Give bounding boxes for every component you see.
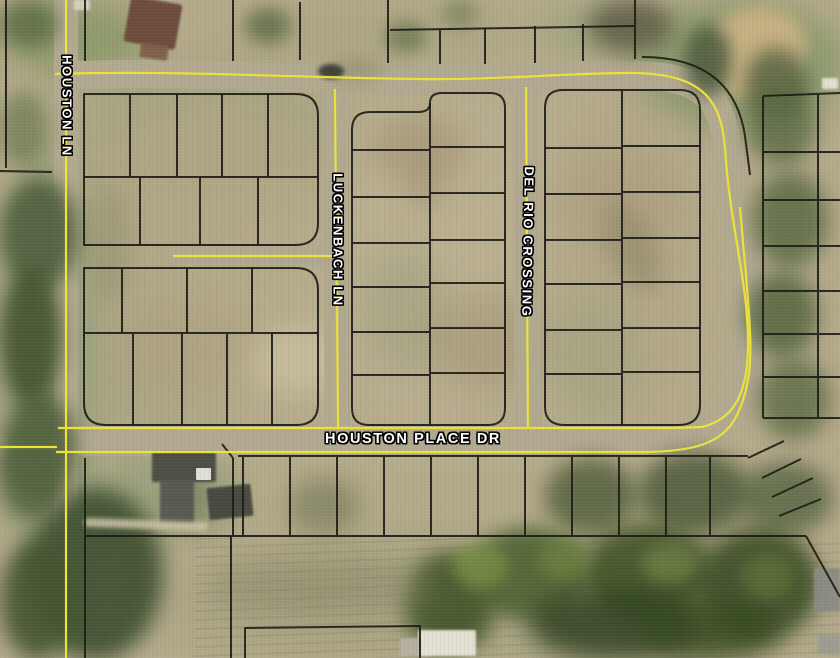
- street-labels-layer: HOUSTON LNLUCKENBACH LNDEL RIO CROSSINGH…: [0, 0, 840, 658]
- street-label-houston-place-dr: HOUSTON PLACE DR: [325, 431, 501, 447]
- street-label-luckenbach-ln: LUCKENBACH LN: [331, 173, 346, 306]
- street-label-del-rio-crossing: DEL RIO CROSSING: [519, 166, 537, 317]
- street-label-houston-ln: HOUSTON LN: [60, 55, 75, 157]
- satellite-map[interactable]: HOUSTON LNLUCKENBACH LNDEL RIO CROSSINGH…: [0, 0, 840, 658]
